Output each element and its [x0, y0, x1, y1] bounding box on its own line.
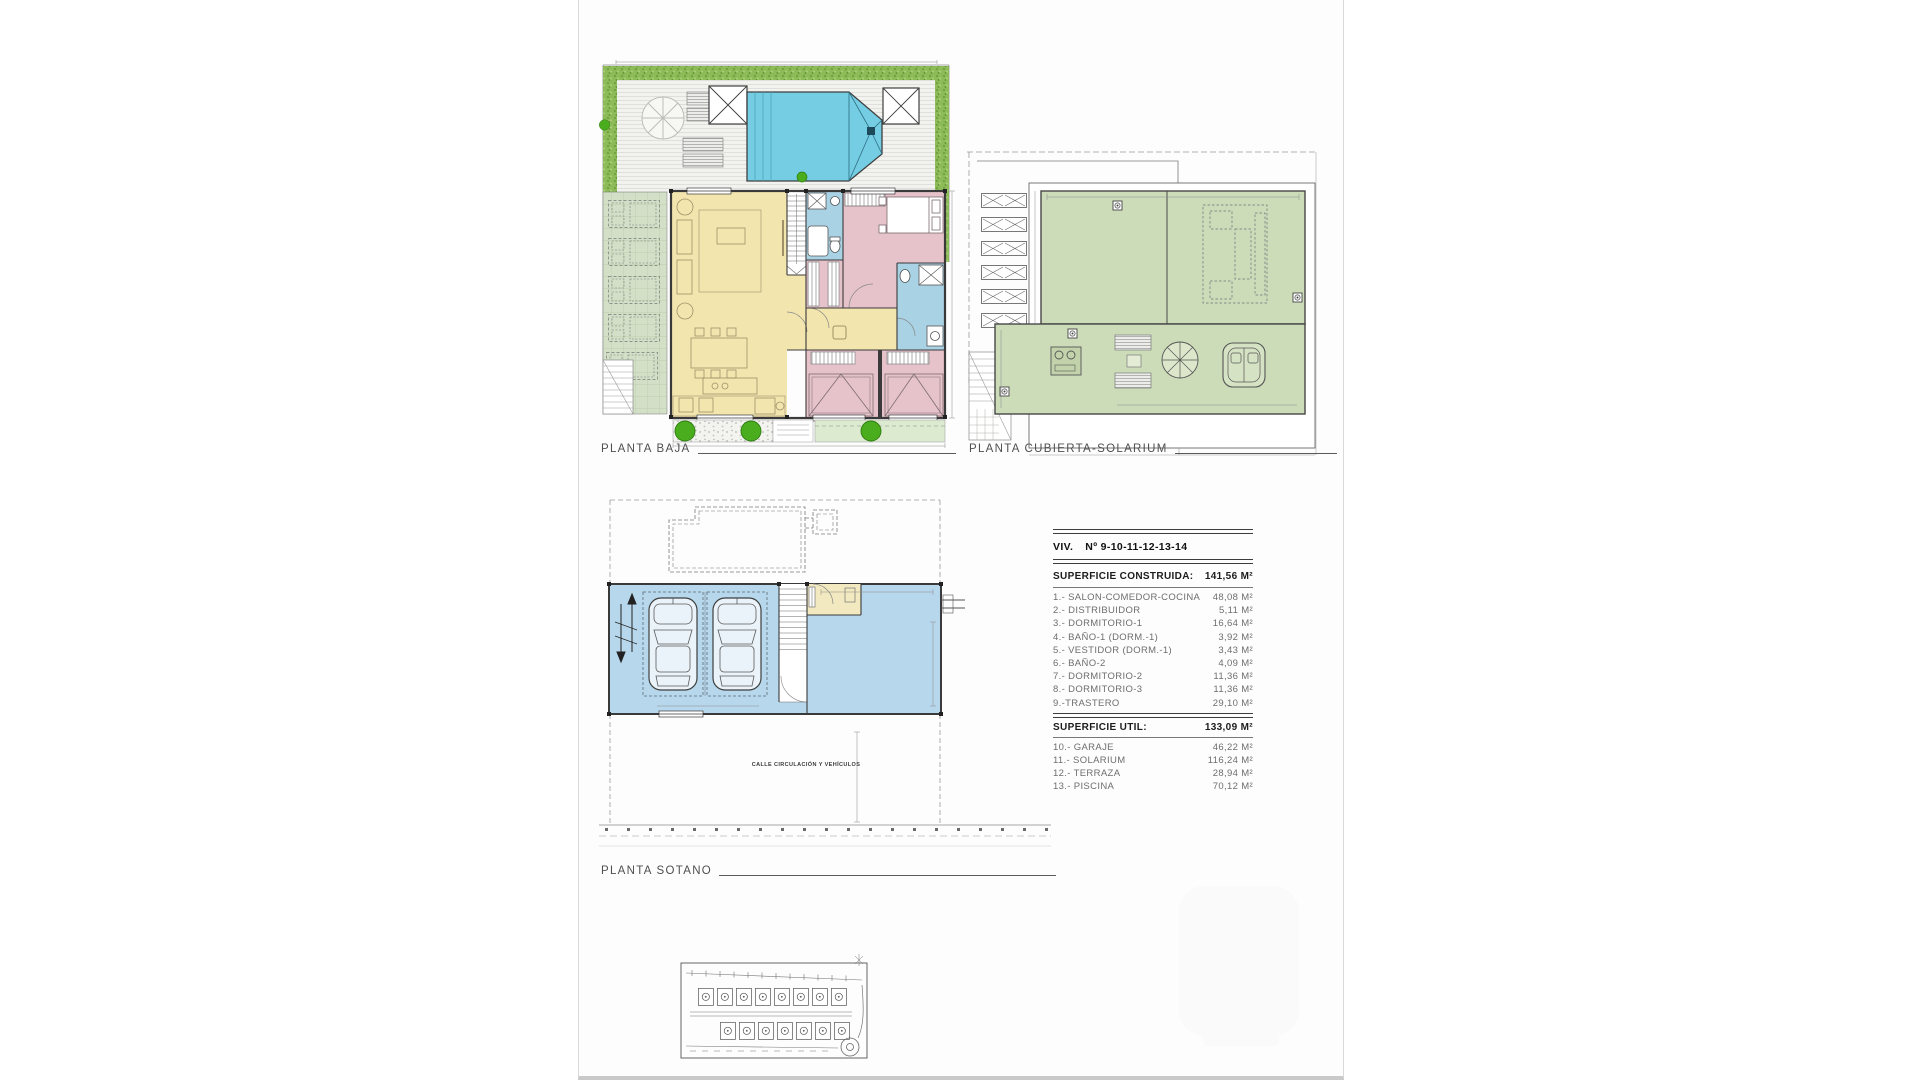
louver-slats: [982, 194, 1027, 328]
table-rule: [1053, 529, 1253, 534]
table-row: 6.- BAÑO-24,09 M²: [1053, 657, 1253, 670]
table-row: 10.- GARAJE46,22 M²: [1053, 741, 1253, 754]
table-row: 7.- DORMITORIO-211,36 M²: [1053, 670, 1253, 683]
house-footprint-dashed: [669, 507, 837, 572]
unit-title: VIV.: [1053, 539, 1073, 555]
table-rule: [1053, 559, 1253, 564]
distribuidor: [806, 308, 897, 350]
built-value: 141,56 M²: [1205, 569, 1253, 584]
table-row: 4.- BAÑO-1 (DORM.-1)3,92 M²: [1053, 631, 1253, 644]
drain-icon: [1293, 293, 1302, 302]
salon-comedor-cocina: [671, 191, 787, 418]
exterior-stairs: [603, 360, 633, 414]
planta-sotano-label-text: PLANTA SOTANO: [601, 865, 712, 877]
bush-icon: [741, 421, 761, 441]
bush-icon: [599, 120, 609, 130]
table-row: 11.- SOLARIUM116,24 M²: [1053, 754, 1253, 767]
drawing-sheet: PLANTA BAJA: [578, 0, 1344, 1080]
label-rule: [698, 453, 956, 454]
entrance-steps: [773, 420, 813, 442]
watermark: [1203, 1012, 1279, 1046]
stairs: [779, 584, 807, 702]
wall-stubs: [941, 595, 965, 613]
car-icon: [713, 598, 761, 690]
bush-icon: [797, 172, 807, 182]
table-row: 8.- DORMITORIO-311,36 M²: [1053, 683, 1253, 696]
site-key-plan: [672, 950, 874, 1070]
car-icon: [649, 598, 697, 690]
table-row: 5.- VESTIDOR (DORM.-1)3,43 M²: [1053, 644, 1253, 657]
table-rule: [1053, 713, 1253, 718]
plot-row-top: [698, 988, 846, 1005]
drain-icon: [1068, 329, 1077, 338]
table-row: 13.- PISCINA70,12 M²: [1053, 780, 1253, 793]
planta-sotano-label: PLANTA SOTANO: [601, 865, 1056, 877]
planta-cubierta-plan: [967, 147, 1319, 459]
front-strip: [673, 420, 945, 442]
drain-icon: [1000, 387, 1009, 396]
table-row: 3.- DORMITORIO-116,64 M²: [1053, 617, 1253, 630]
table-row: 2.- DISTRIBUIDOR5,11 M²: [1053, 604, 1253, 617]
util-value: 133,09 M²: [1205, 720, 1253, 735]
drain-icon: [1113, 201, 1122, 210]
tree-icon: [642, 97, 684, 139]
planta-cubierta-label-text: PLANTA CUBIERTA-SOLARIUM: [969, 443, 1168, 455]
planta-baja-label-text: PLANTA BAJA: [601, 443, 691, 455]
plot-row-bottom: [720, 1022, 849, 1039]
built-label: SUPERFICIE CONSTRUIDA:: [1053, 569, 1193, 584]
road-markers: [605, 828, 1048, 831]
garage-vent: [659, 711, 703, 717]
unit-numbers: Nº 9-10-11-12-13-14: [1085, 539, 1187, 555]
roundabout-icon: [841, 1038, 859, 1056]
screenshot-stage: PLANTA BAJA: [0, 0, 1920, 1080]
label-rule: [719, 875, 1056, 876]
label-rule: [1175, 453, 1337, 454]
planta-baja-label: PLANTA BAJA: [601, 443, 956, 455]
area-table: VIV. Nº 9-10-11-12-13-14 SUPERFICIE CONS…: [1053, 529, 1253, 797]
planta-baja-plan: [599, 60, 957, 448]
table-row: 9.-TRASTERO29,10 M²: [1053, 697, 1253, 710]
compass-icon: [855, 954, 863, 966]
street-label: CALLE CIRCULACIÓN Y VEHÍCULOS: [721, 762, 891, 768]
bush-icon: [675, 421, 695, 441]
pool: [747, 92, 882, 181]
jacuzzi-icon: [1223, 343, 1265, 387]
planta-cubierta-label: PLANTA CUBIERTA-SOLARIUM: [969, 443, 1337, 455]
bbq-icon: [1051, 347, 1081, 375]
bush-icon: [861, 421, 881, 441]
parasol-icon: [1162, 342, 1198, 378]
hedge-top: [603, 66, 949, 80]
solarium-upper: [1041, 191, 1305, 324]
road-lines: [599, 825, 1051, 846]
util-label: SUPERFICIE UTIL:: [1053, 720, 1147, 735]
table-row: 1.- SALON-COMEDOR-COCINA48,08 M²: [1053, 591, 1253, 604]
planta-sotano-plan: [599, 492, 1051, 864]
table-row: 12.- TERRAZA28,94 M²: [1053, 767, 1253, 780]
